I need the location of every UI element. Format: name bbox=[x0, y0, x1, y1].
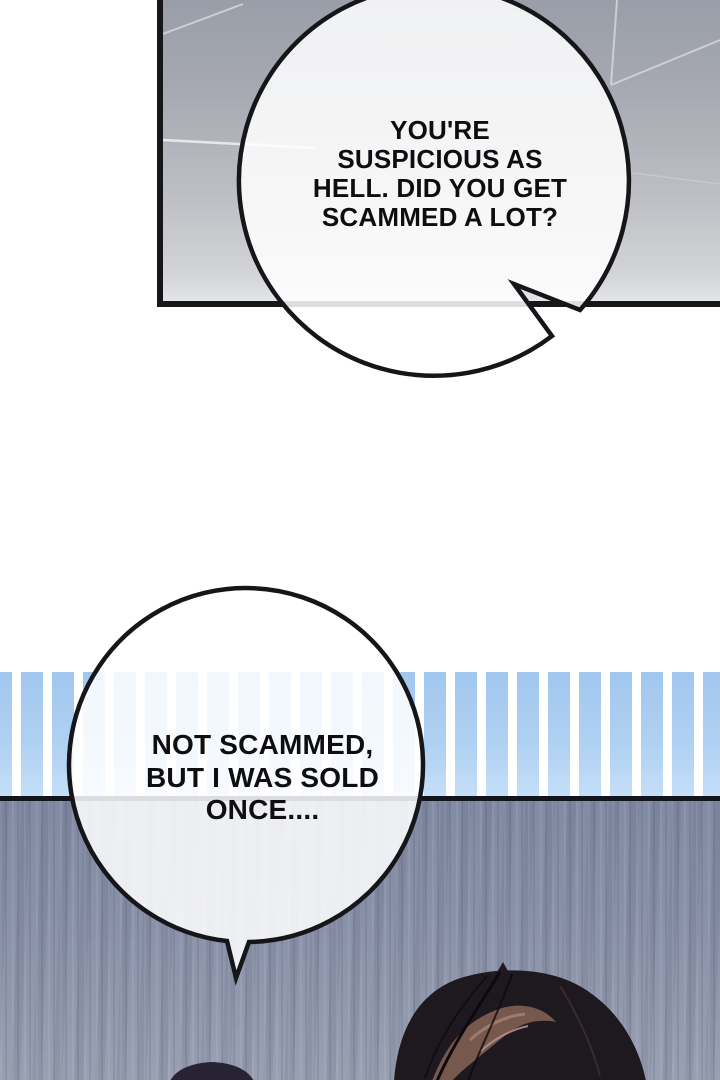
hair-tuft bbox=[496, 962, 509, 974]
character-head-main bbox=[394, 962, 646, 1080]
comic-page: YOU'RE SUSPICIOUS AS HELL. DID YOU GET S… bbox=[0, 0, 720, 1080]
speech-bubble-1-text: YOU'RE SUSPICIOUS AS HELL. DID YOU GET S… bbox=[250, 116, 630, 232]
speech-bubble-2-text: NOT SCAMMED, BUT I WAS SOLD ONCE.... bbox=[90, 729, 435, 827]
character-head-secondary bbox=[170, 1062, 254, 1080]
